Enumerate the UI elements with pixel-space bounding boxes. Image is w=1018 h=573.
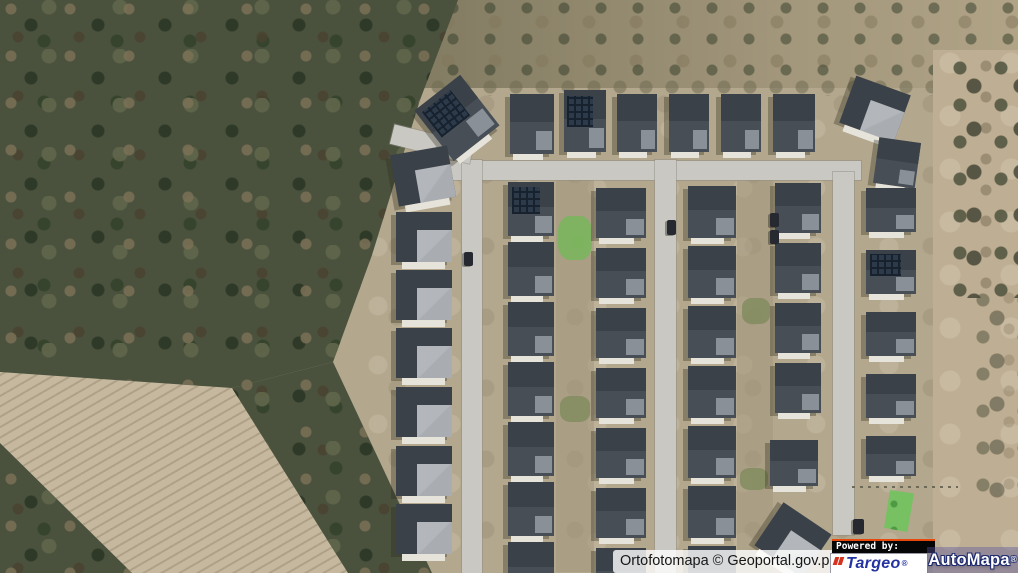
building bbox=[396, 446, 452, 496]
building bbox=[596, 488, 646, 538]
backyard-alley bbox=[737, 180, 773, 572]
car bbox=[853, 519, 864, 534]
street-segment bbox=[833, 172, 854, 535]
powered-by-label: Powered by: bbox=[832, 539, 935, 553]
building bbox=[688, 426, 736, 478]
playground-green bbox=[884, 490, 914, 532]
car bbox=[464, 252, 473, 266]
building bbox=[596, 248, 646, 298]
building bbox=[688, 486, 736, 538]
building bbox=[396, 212, 452, 262]
building bbox=[775, 363, 821, 413]
building bbox=[770, 440, 818, 486]
building bbox=[866, 250, 916, 294]
building bbox=[396, 270, 452, 320]
street-segment bbox=[462, 160, 482, 573]
building bbox=[866, 188, 916, 232]
building bbox=[596, 308, 646, 358]
car bbox=[770, 213, 779, 227]
building bbox=[688, 366, 736, 418]
building bbox=[508, 362, 554, 416]
building bbox=[596, 188, 646, 238]
building bbox=[508, 182, 554, 236]
map-viewport[interactable]: Ortofotomapa © Geoportal.gov.pl Powered … bbox=[0, 0, 1018, 573]
housing-estate bbox=[0, 0, 1018, 573]
map-attribution: Ortofotomapa © Geoportal.gov.pl bbox=[613, 550, 840, 573]
targeo-logo[interactable]: Targeo ® bbox=[830, 553, 928, 573]
building bbox=[617, 94, 657, 152]
building bbox=[596, 428, 646, 478]
building bbox=[775, 183, 821, 233]
building bbox=[508, 242, 554, 296]
building bbox=[396, 387, 452, 437]
targeo-quote-icon bbox=[838, 557, 845, 565]
building bbox=[508, 302, 554, 356]
building bbox=[775, 303, 821, 353]
building bbox=[596, 368, 646, 418]
building bbox=[866, 312, 916, 356]
building bbox=[773, 94, 815, 152]
grass-patch bbox=[740, 468, 768, 490]
fence-line bbox=[852, 486, 958, 488]
building bbox=[669, 94, 709, 152]
building bbox=[721, 94, 761, 152]
building bbox=[839, 76, 911, 143]
building bbox=[775, 243, 821, 293]
building bbox=[688, 306, 736, 358]
building bbox=[873, 137, 921, 188]
building bbox=[508, 482, 554, 536]
car bbox=[667, 220, 676, 235]
building bbox=[396, 504, 452, 554]
building bbox=[564, 90, 606, 152]
building bbox=[688, 246, 736, 298]
building bbox=[396, 328, 452, 378]
building bbox=[688, 186, 736, 238]
building bbox=[508, 542, 554, 573]
building bbox=[866, 374, 916, 418]
car bbox=[770, 230, 779, 244]
street-segment bbox=[440, 161, 861, 180]
attribution-text: Ortofotomapa © Geoportal.gov.pl bbox=[620, 553, 833, 569]
building bbox=[510, 94, 554, 154]
grass-patch bbox=[572, 236, 584, 248]
building bbox=[866, 436, 916, 476]
building bbox=[390, 145, 456, 206]
building bbox=[508, 422, 554, 476]
grass-patch bbox=[560, 396, 590, 422]
grass-patch bbox=[742, 298, 770, 324]
automapa-logo[interactable]: AutoMapa ® bbox=[927, 547, 1018, 573]
